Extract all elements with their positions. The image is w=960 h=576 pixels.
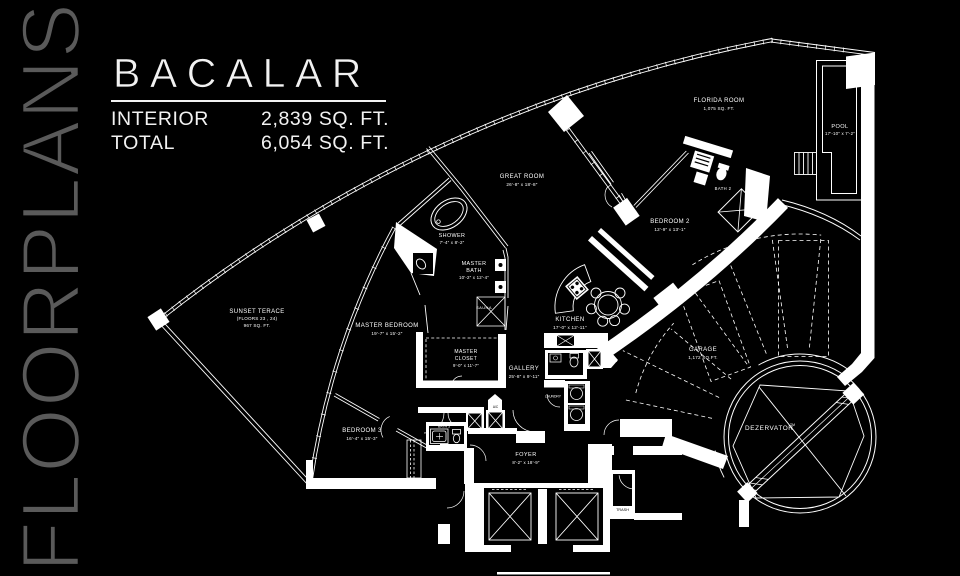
svg-text:SUNSET TERACE: SUNSET TERACE [229,309,284,315]
svg-text:10′-2″ x 12′-4″: 10′-2″ x 12′-4″ [459,275,489,280]
svg-text:POOL: POOL [831,124,848,130]
svg-text:MASTER: MASTER [462,261,487,267]
svg-text:A/C: A/C [493,405,499,409]
svg-text:MASTER BEDROOM: MASTER BEDROOM [355,323,418,329]
svg-text:BATH 3: BATH 3 [438,425,450,429]
svg-text:1,172 SQ.FT.: 1,172 SQ.FT. [688,355,717,360]
svg-text:MASTER: MASTER [454,349,477,355]
svg-text:GARAGE: GARAGE [689,347,717,353]
svg-text:LAUNDRY: LAUNDRY [545,395,562,399]
svg-text:FLORIDA ROOM: FLORIDA ROOM [694,98,745,104]
svg-text:BEDROOM 2: BEDROOM 2 [650,219,690,225]
svg-text:GALLERY: GALLERY [509,366,539,372]
svg-text:7′-4″ x 8′-2″: 7′-4″ x 8′-2″ [440,240,465,245]
svg-text:GREAT ROOM: GREAT ROOM [500,174,544,180]
svg-text:9′-0″ x 11′-7″: 9′-0″ x 11′-7″ [453,363,479,368]
svg-text:967 SQ. FT.: 967 SQ. FT. [244,323,271,328]
svg-text:1,075 SQ. FT.: 1,075 SQ. FT. [704,106,735,111]
svg-text:CLOSET: CLOSET [455,356,477,362]
svg-text:BATH: BATH [466,268,482,274]
svg-text:DEZERVATOR: DEZERVATOR [745,425,794,432]
svg-text:8′-2″ x 18′-9″: 8′-2″ x 18′-9″ [512,460,540,465]
svg-text:16′-4″ x 15′-3″: 16′-4″ x 15′-3″ [346,436,377,441]
svg-text:17′-10″ x 7′-2″: 17′-10″ x 7′-2″ [825,131,855,136]
svg-text:KITCHEN: KITCHEN [555,317,584,323]
svg-text:TM: TM [790,423,795,427]
svg-text:12′-9″ x 13′-1″: 12′-9″ x 13′-1″ [654,227,685,232]
svg-text:BATH 2: BATH 2 [715,186,732,191]
svg-text:TRASH: TRASH [616,508,629,512]
svg-text:POWDER: POWDER [557,370,574,374]
svg-text:19′-7″ x 15′-2″: 19′-7″ x 15′-2″ [371,331,402,336]
svg-text:BEDROOM 3: BEDROOM 3 [342,428,382,434]
svg-text:(FLOORS 23 , 24): (FLOORS 23 , 24) [237,316,278,321]
svg-text:SHOWER: SHOWER [439,233,466,239]
svg-text:17′-0″ x 12′-11″: 17′-0″ x 12′-11″ [553,325,587,330]
svg-text:SAUNA: SAUNA [476,305,492,310]
svg-text:FOYER: FOYER [515,452,536,458]
svg-text:25′-8″ x 9′-11″: 25′-8″ x 9′-11″ [509,374,540,379]
svg-text:26′-8″ x 18′-8″: 26′-8″ x 18′-8″ [506,182,537,187]
svg-text:A/C: A/C [612,359,618,363]
